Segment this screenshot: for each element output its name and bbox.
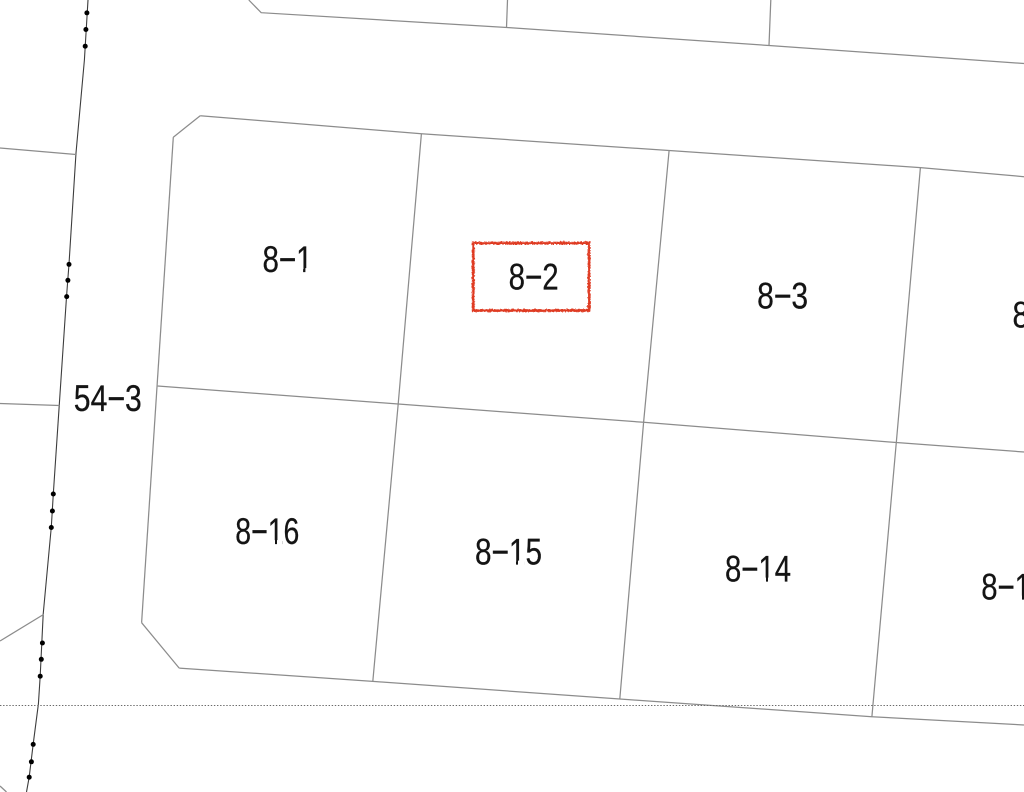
svg-text:8−15: 8−15 [475, 532, 542, 573]
svg-text:8−13: 8−13 [981, 567, 1024, 608]
svg-text:54−3: 54−3 [74, 378, 142, 419]
svg-text:8−1: 8−1 [263, 239, 313, 280]
svg-text:8−4: 8−4 [1013, 295, 1024, 336]
svg-text:8−16: 8−16 [235, 511, 299, 552]
svg-text:8−14: 8−14 [725, 549, 791, 590]
svg-text:8−2: 8−2 [509, 257, 559, 298]
svg-text:8−3: 8−3 [757, 276, 808, 317]
